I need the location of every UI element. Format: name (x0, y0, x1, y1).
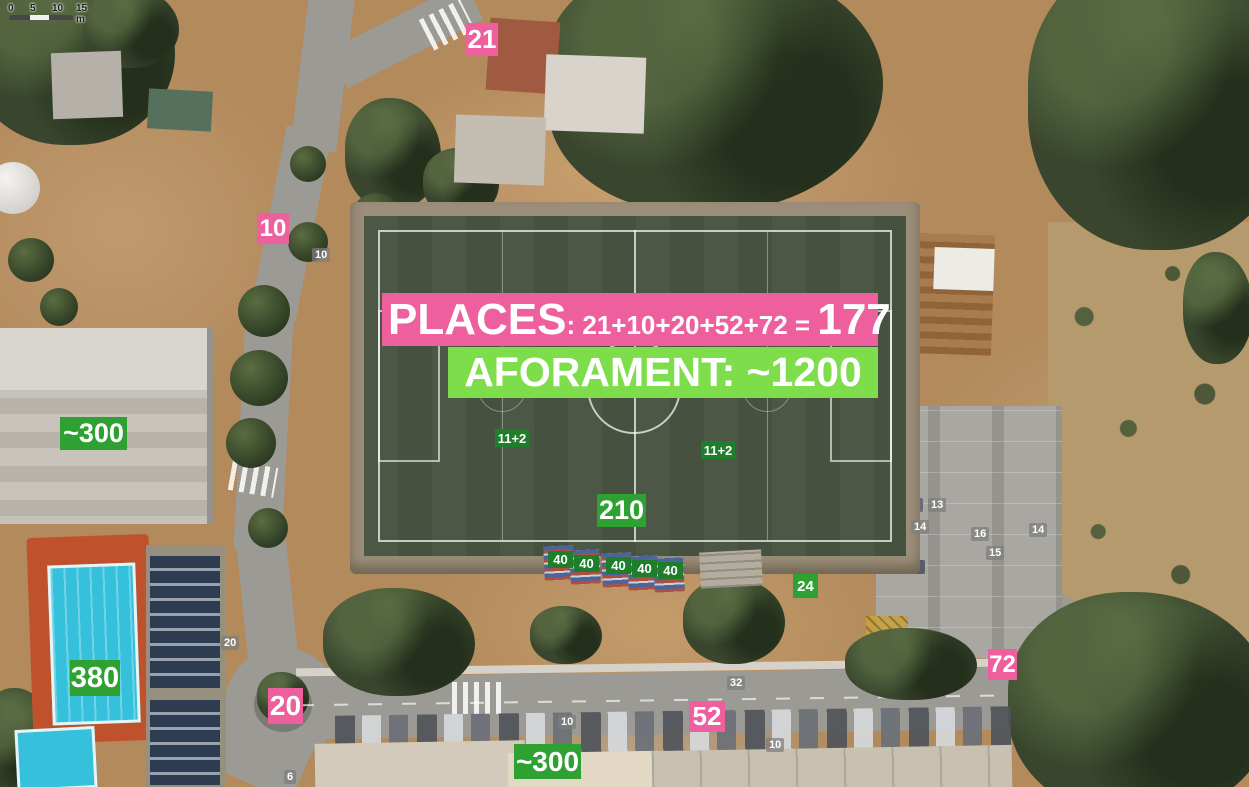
street-number-label: 13 (928, 498, 946, 512)
stand-section-badge: 40 (632, 560, 657, 577)
green-shed (147, 88, 213, 131)
access-count-badge: 20 (268, 688, 303, 724)
stand-section-badge: 40 (574, 555, 599, 572)
capacity-badge-sports-hall: ~300 (60, 417, 127, 450)
access-count-badge: 10 (257, 213, 289, 244)
building (315, 740, 526, 787)
street-number-label: 32 (727, 676, 745, 690)
access-count-badge: 21 (466, 23, 498, 56)
white-canopy (933, 247, 994, 291)
street-number-label: 20 (221, 636, 239, 650)
places-total-banner: PLACES: 21+10+20+52+72 = 177 (382, 293, 878, 346)
capacity-badge-pool: 380 (70, 660, 120, 696)
solar-panels (150, 556, 220, 688)
street-number-label: 10 (312, 248, 330, 262)
street-number-label: 15 (986, 546, 1004, 560)
building (652, 745, 1013, 787)
building (51, 51, 123, 119)
capacity-badge-bottom: ~300 (514, 744, 581, 779)
building (454, 114, 546, 185)
street-number-label: 6 (284, 770, 296, 784)
solar-panels (150, 700, 220, 785)
street-number-label: 10 (558, 715, 576, 729)
pitch-format-label: 11+2 (701, 441, 735, 459)
scale-tick: 5 (30, 3, 36, 14)
scale-tick: 15 m (76, 3, 87, 25)
places-banner-formula: : 21+10+20+52+72 = (566, 310, 817, 340)
stand-section-badge: 40 (606, 557, 631, 574)
building (544, 54, 647, 133)
street-number-label: 14 (911, 520, 929, 534)
aforament-banner-text: AFORAMENT: ~1200 (464, 349, 862, 396)
stand-section-badge: 40 (548, 551, 573, 568)
aforament-banner: AFORAMENT: ~1200 (448, 347, 878, 398)
street-number-label: 10 (766, 738, 784, 752)
pitch-format-label: 11+2 (495, 429, 529, 447)
concrete-steps (699, 549, 763, 588)
capacity-badge-small: 24 (793, 574, 818, 598)
capacity-badge-field: 210 (597, 494, 646, 527)
swimming-pool-lower (14, 726, 97, 787)
scale-tick: 0 (8, 3, 14, 14)
street-number-label: 16 (971, 527, 989, 541)
places-banner-label: PLACES (388, 295, 566, 344)
swimming-pool (47, 563, 141, 726)
places-banner-total: 177 (817, 295, 890, 344)
access-count-badge: 72 (988, 649, 1017, 680)
street-number-label: 14 (1029, 523, 1047, 537)
access-count-badge: 52 (689, 701, 725, 732)
scale-bar-track (9, 15, 73, 20)
annotated-aerial-map: 10 20 32 13 14 16 14 15 10 10 6 21 10 20… (0, 0, 1249, 787)
scale-bar-segment (30, 15, 49, 20)
scale-tick: 10 (52, 3, 63, 14)
crosswalk (452, 682, 504, 714)
stand-section-badge: 40 (658, 562, 683, 579)
